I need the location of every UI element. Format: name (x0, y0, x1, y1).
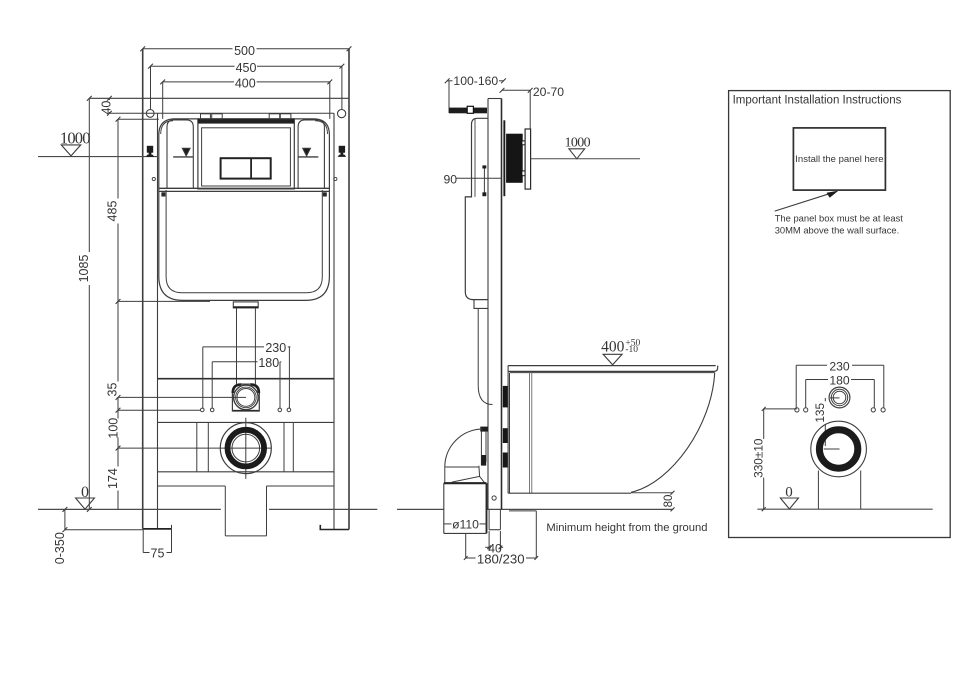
svg-text:40: 40 (100, 101, 114, 115)
svg-text:100-160: 100-160 (453, 74, 498, 88)
svg-text:230: 230 (265, 341, 286, 355)
svg-text:80: 80 (663, 495, 675, 508)
svg-text:1085: 1085 (77, 255, 91, 283)
svg-text:330±10: 330±10 (752, 438, 766, 478)
svg-text:30MM above the wall surface.: 30MM above the wall surface. (775, 224, 900, 235)
svg-text:135: 135 (813, 403, 827, 423)
svg-text:ø110: ø110 (452, 517, 479, 531)
svg-text:Minimum height from the ground: Minimum height from the ground (546, 522, 707, 534)
svg-text:174: 174 (106, 468, 120, 489)
svg-text:75: 75 (151, 547, 165, 561)
svg-text:0-350: 0-350 (53, 532, 67, 564)
svg-text:180/230: 180/230 (477, 552, 525, 567)
svg-text:500: 500 (234, 44, 255, 58)
svg-text:485: 485 (106, 201, 120, 222)
svg-text:400: 400 (601, 339, 625, 356)
svg-text:450: 450 (236, 61, 257, 75)
svg-text:90: 90 (444, 172, 458, 186)
svg-text:20-70: 20-70 (533, 85, 564, 99)
svg-text:400: 400 (235, 76, 256, 90)
svg-text:230: 230 (829, 359, 850, 373)
svg-text:180: 180 (258, 356, 279, 370)
svg-text:Important Installation Instruc: Important Installation Instructions (733, 94, 902, 106)
svg-text:35: 35 (106, 383, 120, 397)
svg-text:-10: -10 (625, 345, 638, 355)
svg-text:100: 100 (107, 418, 121, 439)
svg-text:180: 180 (829, 374, 850, 388)
svg-text:Install the panel here: Install the panel here (795, 154, 883, 165)
svg-text:The panel box must be at least: The panel box must be at least (775, 212, 904, 223)
